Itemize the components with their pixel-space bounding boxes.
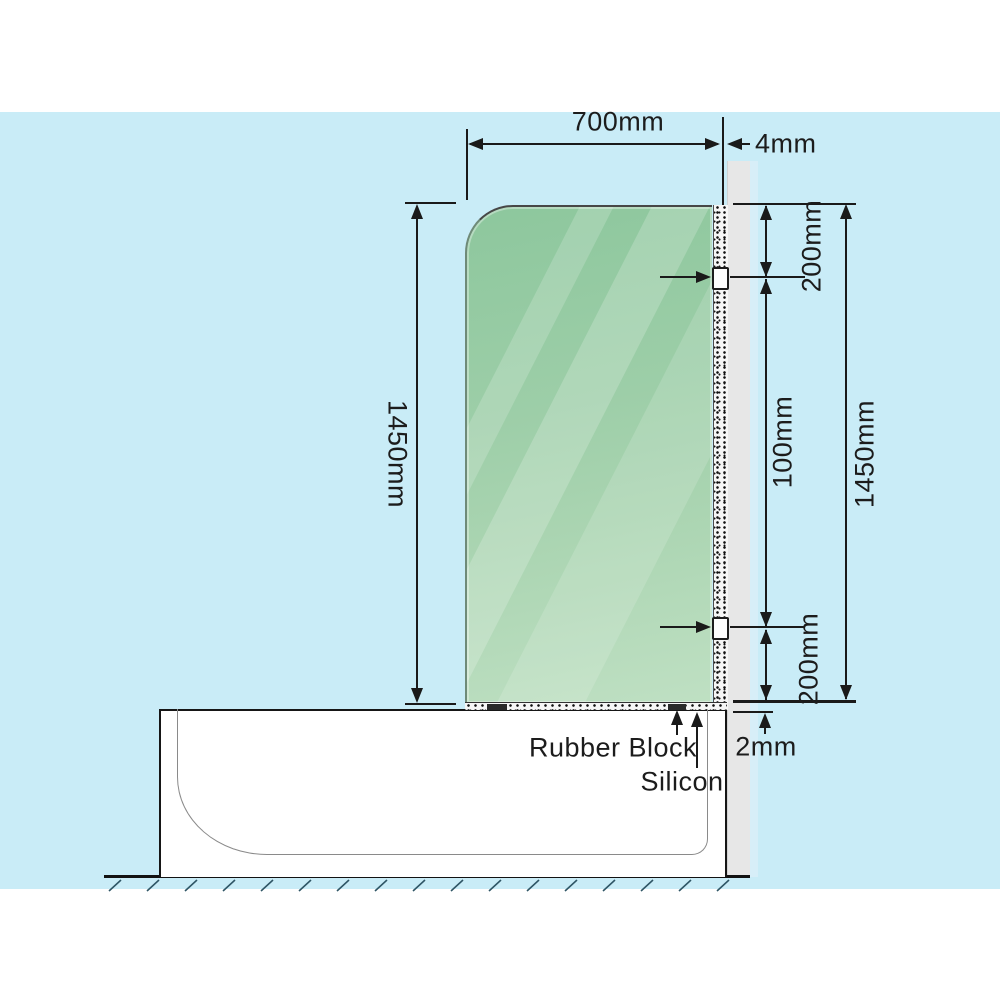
arrowhead bbox=[671, 710, 683, 725]
arrowhead bbox=[760, 629, 772, 644]
arrowhead bbox=[691, 712, 703, 727]
arrowhead bbox=[696, 271, 711, 283]
ground-hatch bbox=[106, 879, 750, 892]
dim-label-wall-height: 1450mm bbox=[850, 400, 881, 508]
leader-line-bottom-bracket bbox=[660, 626, 700, 628]
arrowhead bbox=[411, 204, 423, 219]
dimension-line-1450-right bbox=[845, 207, 847, 699]
wall-shadow bbox=[750, 161, 758, 877]
dim-label-bracket-spacing: 100mm bbox=[768, 396, 799, 489]
arrowhead bbox=[696, 621, 711, 633]
arrowhead bbox=[411, 688, 423, 703]
arrowhead bbox=[760, 205, 772, 220]
arrowhead bbox=[759, 713, 771, 728]
arrowhead bbox=[705, 138, 720, 150]
glass-reflection bbox=[465, 205, 712, 703]
glass-panel bbox=[465, 205, 712, 703]
dim-label-bottom-gap: 2mm bbox=[735, 732, 797, 763]
wall bbox=[727, 161, 751, 877]
dim-label-glass-width: 700mm bbox=[572, 107, 665, 138]
dim-label-top-offset: 200mm bbox=[797, 200, 828, 293]
extension-tick bbox=[405, 703, 456, 705]
arrowhead bbox=[760, 279, 772, 294]
reference-line-top bbox=[733, 203, 856, 205]
callout-rubber-block: Rubber Block bbox=[529, 733, 697, 764]
dim-label-bottom-offset: 200mm bbox=[794, 613, 825, 706]
callout-silicon: Silicon bbox=[640, 767, 723, 798]
dim-label-glass-height: 1450mm bbox=[382, 400, 413, 508]
arrowhead bbox=[760, 262, 772, 277]
leader-line-top-bracket bbox=[660, 276, 700, 278]
dimension-line-1450-left bbox=[416, 207, 418, 699]
glass-bracket-bottom bbox=[712, 617, 729, 640]
rubber-block-left bbox=[487, 704, 507, 710]
arrowhead bbox=[760, 612, 772, 627]
glass-edge-extension-line bbox=[722, 117, 724, 205]
arrowhead bbox=[840, 685, 852, 700]
arrowhead bbox=[760, 685, 772, 700]
glass-bracket-top bbox=[712, 267, 729, 290]
dimension-line-700 bbox=[470, 143, 718, 145]
bathtub-basin bbox=[177, 709, 708, 855]
arrowhead bbox=[840, 204, 852, 219]
arrowhead bbox=[727, 138, 742, 150]
dim-label-glass-thickness: 4mm bbox=[755, 129, 817, 160]
diagram-canvas: 700mm 4mm 1450mm 200mm 100mm 200mm 1450m… bbox=[0, 0, 1000, 1000]
arrowhead bbox=[468, 138, 483, 150]
